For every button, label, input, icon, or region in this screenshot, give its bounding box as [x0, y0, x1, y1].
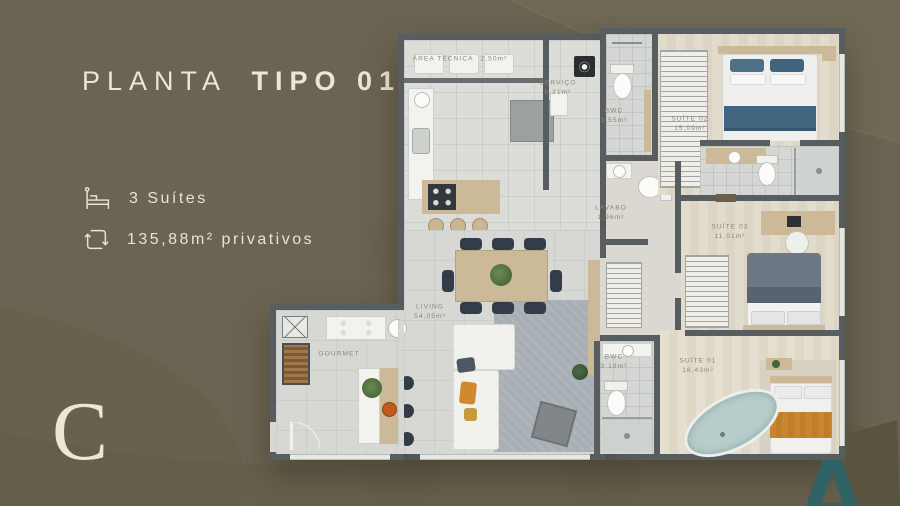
dining-chair: [524, 302, 546, 314]
kitchen-sink: [412, 128, 430, 154]
washer: [574, 56, 595, 77]
fruit-bowl: [382, 402, 397, 417]
room-label-bwc-bottom: BWC 3,19m²: [601, 353, 628, 371]
room-area: 54,05m²: [414, 312, 446, 321]
table-plant: [490, 264, 512, 286]
window: [839, 54, 845, 132]
pillow: [804, 386, 832, 399]
wall: [594, 341, 600, 454]
wall: [685, 330, 839, 336]
island-plant: [362, 378, 382, 398]
pillow: [770, 59, 804, 72]
shower-glass: [794, 148, 796, 195]
room-label-suite-03: SUÍTE 03 11,01m²: [711, 223, 748, 241]
dining-chair: [492, 302, 514, 314]
shower-rail: [612, 42, 642, 44]
pillow: [770, 74, 806, 85]
nightstand: [822, 46, 836, 61]
suite-03-blanket: [747, 287, 821, 303]
wall: [675, 161, 681, 273]
bed-throw: [724, 106, 816, 131]
dining-chair: [442, 270, 454, 292]
dining-chair: [460, 302, 482, 314]
cooktop: [428, 184, 456, 210]
desk-chair: [785, 231, 809, 255]
room-area: 1,96m²: [595, 213, 627, 222]
watermark-logo-a: A: [787, 418, 900, 506]
bathtub-faucet: [720, 432, 725, 437]
opening-living-gourmet: [398, 320, 404, 446]
floor-plan: ÁREA TÉCNICA 2,50m² SERVIÇO 5,21m² BWC 3…: [270, 28, 848, 460]
window: [839, 228, 845, 316]
wall: [600, 155, 652, 161]
wall: [543, 40, 549, 190]
pillow: [730, 59, 764, 72]
watermark-letter: A: [793, 436, 871, 506]
wall: [700, 140, 770, 146]
suite-01-headboard: [770, 376, 832, 383]
dining-chair: [550, 270, 562, 292]
pillow: [774, 386, 802, 399]
room-name: LAVABO: [595, 204, 627, 213]
suite-03-wardrobe: [685, 255, 729, 328]
window: [290, 454, 390, 460]
page-title-light: PLANTA: [82, 66, 227, 96]
room-area: 15,09m²: [671, 124, 708, 133]
dining-chair: [524, 238, 546, 250]
room-name: SUÍTE 01: [679, 357, 716, 366]
room-area: 16,43m²: [679, 366, 716, 375]
lavabo-basin: [613, 165, 626, 178]
suite-02-toilet: [758, 162, 776, 186]
laptop: [787, 216, 801, 227]
toilet-tank: [610, 64, 632, 72]
wall-tv: [716, 194, 736, 202]
bed-icon: [84, 186, 111, 211]
gourmet-cooktop-counter: [326, 316, 386, 340]
bath-cabinet: [644, 90, 651, 152]
kitchen-room: [404, 40, 600, 230]
room-label-lavabo: LAVABO 1,96m²: [595, 204, 627, 222]
gourmet-room: [276, 310, 404, 454]
room-name: BWC: [601, 107, 628, 116]
room-label-gourmet: GOURMET: [316, 349, 361, 358]
room-area: 3,19m²: [601, 362, 628, 371]
vanity-basin: [728, 151, 741, 164]
room-label-living: LIVING 54,05m²: [414, 303, 446, 321]
living-room: [404, 230, 600, 454]
suite-03-duvet: [747, 253, 821, 291]
entry-door-swing: [292, 422, 321, 451]
room-area: 11,01m²: [711, 232, 748, 241]
brand-logo-c: C: [52, 390, 108, 474]
room-label-servico: SERVIÇO 5,21m²: [540, 79, 577, 97]
kitchen-round-sink: [414, 92, 430, 108]
pillow: [730, 74, 766, 85]
opening-living-hall: [600, 258, 606, 335]
bwc-top-room: [606, 34, 652, 155]
room-label-area-tecnica: ÁREA TÉCNICA 2,50m²: [411, 54, 510, 63]
hall-closet: [606, 262, 642, 328]
room-name: SUÍTE 03: [711, 223, 748, 232]
room-name: LIVING: [414, 303, 446, 312]
shower-drain: [624, 433, 630, 439]
sofa-throw-orange: [459, 381, 477, 405]
suite-03-room: [681, 201, 839, 330]
bench-plant: [772, 360, 780, 368]
shaft-box: [282, 316, 308, 338]
sofa-pillow: [464, 408, 477, 421]
opening-suite-01-door: [660, 330, 685, 336]
pillow: [787, 311, 821, 325]
floor-plant: [572, 364, 588, 380]
wall: [652, 34, 658, 140]
suite-02-headboard: [718, 46, 822, 54]
room-name: SERVIÇO: [540, 79, 577, 88]
room-name: BWC: [601, 353, 628, 362]
room-label-suite-02: SUÍTE 02 15,09m²: [671, 115, 708, 133]
room-name: GOURMET: [318, 349, 359, 358]
area-icon: [84, 227, 109, 252]
feature-suites-label: 3 Suítes: [129, 190, 208, 208]
wall: [654, 335, 660, 454]
grill: [282, 343, 310, 385]
room-area: 5,21m²: [540, 88, 577, 97]
room-area: 3,55m²: [601, 116, 628, 125]
wall: [681, 195, 839, 201]
pillow: [751, 311, 785, 325]
dining-chair: [460, 238, 482, 250]
room-name: SUÍTE 02: [671, 115, 708, 124]
shower-drain: [816, 168, 822, 174]
toilet: [613, 73, 632, 99]
dining-chair: [492, 238, 514, 250]
room-name: ÁREA TÉCNICA: [413, 54, 474, 63]
entry-opening: [270, 422, 276, 452]
wall: [606, 239, 648, 245]
sofa-pillow: [456, 357, 476, 373]
window: [420, 454, 590, 460]
bwc-toilet: [607, 390, 626, 416]
wall: [600, 335, 654, 341]
feature-suites: 3 Suítes: [84, 186, 208, 211]
counter-back-wall: [404, 78, 543, 83]
wall: [800, 140, 839, 146]
room-label-bwc-top: BWC 3,55m²: [601, 107, 628, 125]
room-area: 2,50m²: [480, 54, 507, 63]
room-label-suite-01: SUÍTE 01 16,43m²: [679, 357, 716, 375]
shower-glass: [602, 417, 652, 419]
